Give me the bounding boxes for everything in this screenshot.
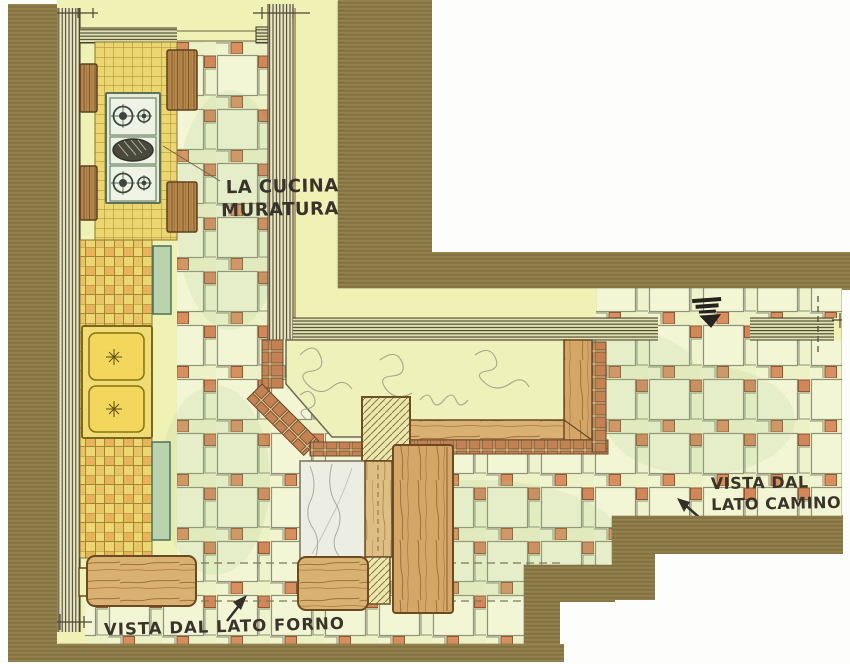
cardboard-band-bottom [8,644,564,662]
door-threshold [177,31,268,41]
wood-bench-left [79,556,196,606]
brick-edge [592,342,606,452]
hearth-wood-edge [564,340,592,440]
cardboard-step-a [652,515,843,554]
stove-cooktop [106,93,160,203]
double-sink [82,326,152,438]
annotation-camino-line2: LATO CAMINO [711,493,841,516]
cardboard-step-corner2 [520,563,560,646]
cardboard-band-topright [430,252,850,290]
corridor-right-wall [268,4,295,340]
top-wall [80,27,273,43]
fireplace-hearth [247,340,608,456]
wood-table [393,445,453,613]
wood-bench-center [298,557,368,610]
scanned-plan-photo: LA CUCINA IN MURATURA VISTA DAL LATO CAM… [0,0,850,664]
cardboard-block-top [338,0,432,290]
annotation-camino-line1: VISTA DAL [711,472,841,495]
cardboard-step-corner1 [610,515,655,600]
green-shelf-trim [152,246,171,540]
annotation-camino: VISTA DAL LATO CAMINO [711,472,842,516]
fireplace-room-wall [293,318,834,340]
left-wall [57,8,80,632]
hearth-wood-edge [408,420,566,440]
brick-edge [262,340,283,388]
cardboard-strip-left [8,4,57,646]
brick-edge [310,442,368,456]
